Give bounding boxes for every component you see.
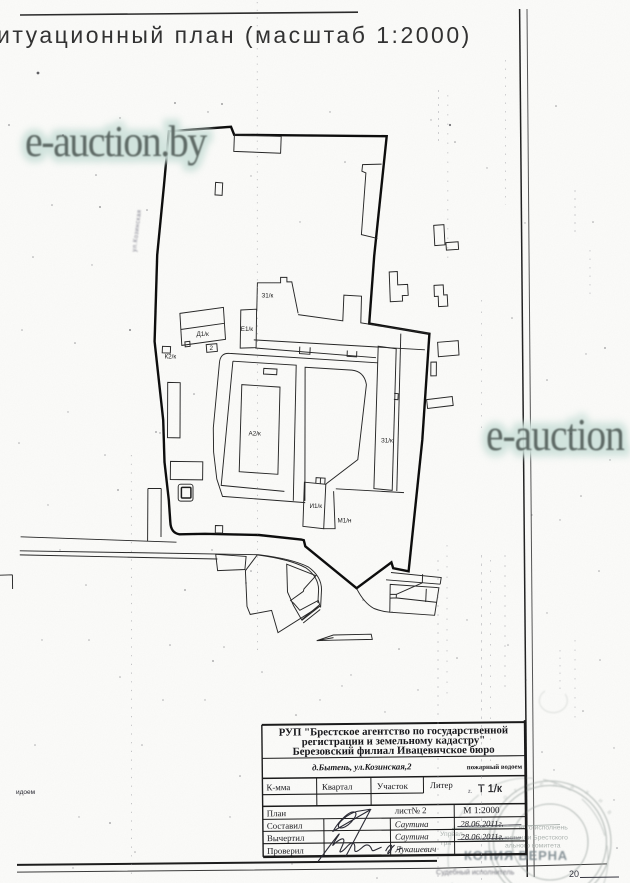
svg-text:Составил: Составил xyxy=(267,820,303,830)
svg-text:пожарный водоем: пожарный водоем xyxy=(467,764,523,772)
svg-text:Квартал: Квартал xyxy=(322,781,353,791)
svg-text:З1/к: З1/к xyxy=(381,438,393,445)
svg-text:20: 20 xyxy=(569,869,579,879)
svg-text:Управл: Управл xyxy=(440,831,463,838)
svg-text:Проверил: Проверил xyxy=(267,845,304,855)
svg-text:лист№ 2: лист№ 2 xyxy=(395,805,427,815)
svg-text:идоем: идоем xyxy=(16,789,36,796)
svg-text:З1/к: З1/к xyxy=(262,293,274,300)
svg-text:М1/н: М1/н xyxy=(338,517,352,524)
svg-text:Судебный исполнитель: Судебный исполнитель xyxy=(436,868,515,877)
svg-text:28.06.2011г.: 28.06.2011г. xyxy=(460,831,504,841)
svg-text:гра: гра xyxy=(441,840,451,847)
svg-text:И1/к: И1/к xyxy=(310,503,323,510)
svg-text:итуационный план (масштаб 1:20: итуационный план (масштаб 1:2000) xyxy=(0,22,472,48)
svg-text:Участок: Участок xyxy=(377,781,409,791)
svg-text:План: План xyxy=(267,808,287,818)
svg-text:А2/к: А2/к xyxy=(249,431,261,438)
svg-text:28.06.2011г.: 28.06.2011г. xyxy=(460,818,504,828)
svg-text:z.: z. xyxy=(468,789,473,795)
svg-text:д.Бытень, ул.Козинская,2: д.Бытень, ул.Козинская,2 xyxy=(312,761,412,772)
svg-text:л: л xyxy=(553,781,557,788)
svg-text:Литер: Литер xyxy=(430,780,454,790)
svg-text:Д1/к: Д1/к xyxy=(197,331,210,338)
svg-text:e-auction: e-auction xyxy=(486,411,625,461)
svg-text:Саутина: Саутина xyxy=(395,819,429,829)
svg-text:К2/к: К2/к xyxy=(165,353,177,360)
svg-text:Е1/к: Е1/к xyxy=(241,326,253,333)
svg-text:e-auction.by: e-auction.by xyxy=(25,117,208,167)
svg-text:Саутина: Саутина xyxy=(395,831,429,841)
svg-text:К-мма: К-мма xyxy=(266,782,290,792)
svg-text:2: 2 xyxy=(210,345,214,352)
svg-text:Вычертил: Вычертил xyxy=(267,833,305,843)
svg-text:Березовский филиал Ивацевичско: Березовский филиал Ивацевичское бюро xyxy=(293,744,495,758)
